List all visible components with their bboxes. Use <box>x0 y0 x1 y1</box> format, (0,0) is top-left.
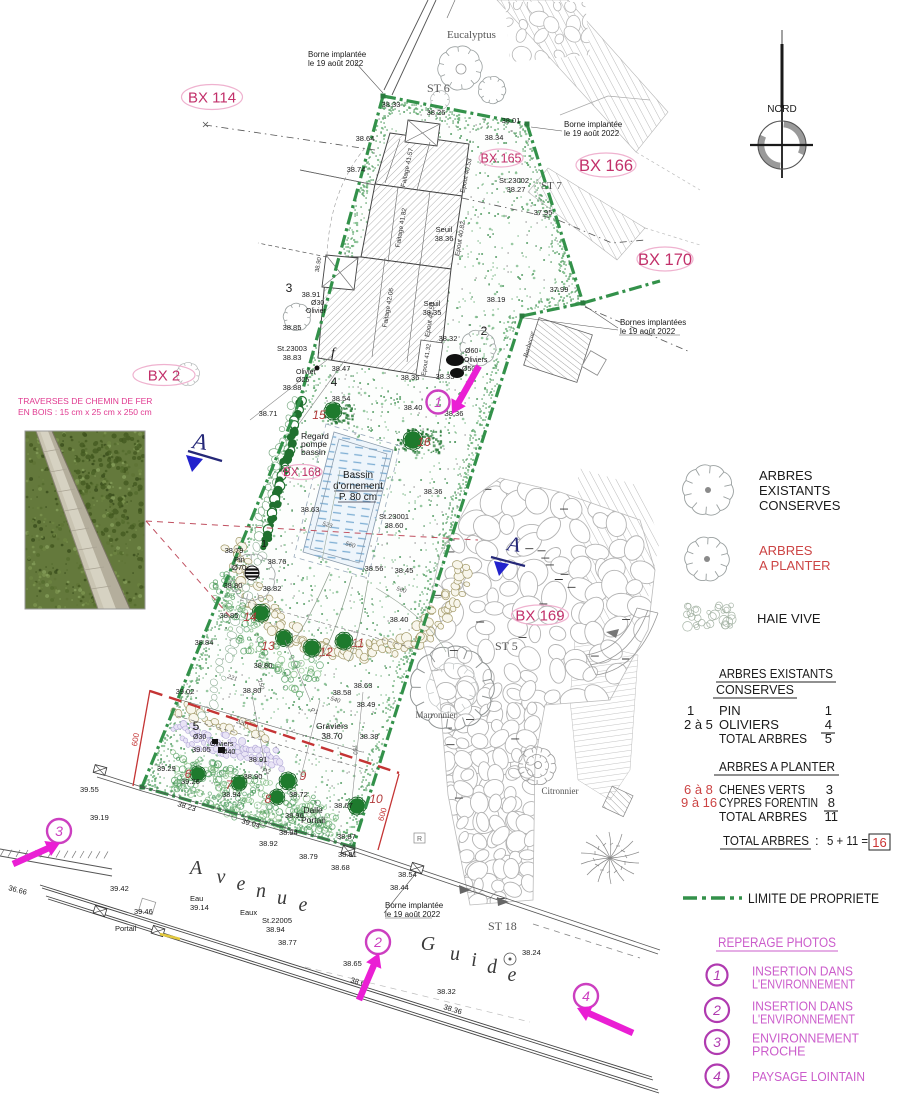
svg-text:Ø30: Ø30 <box>311 300 324 307</box>
svg-text:5 + 11 =: 5 + 11 = <box>827 833 868 848</box>
svg-text:A PLANTER: A PLANTER <box>759 558 831 573</box>
svg-text:3: 3 <box>286 281 293 295</box>
svg-text::: : <box>815 833 819 848</box>
svg-text:Olivier: Olivier <box>306 308 327 315</box>
svg-text:12: 12 <box>319 645 333 659</box>
svg-text:4: 4 <box>713 1068 721 1084</box>
svg-text:e: e <box>299 894 308 916</box>
svg-text:5: 5 <box>825 731 832 746</box>
svg-text:38.70: 38.70 <box>321 731 343 741</box>
svg-text:38.90: 38.90 <box>244 772 263 781</box>
svg-text:Ø40: Ø40 <box>222 749 235 756</box>
svg-text:1: 1 <box>687 703 694 718</box>
svg-text:EN BOIS : 15 cm x 25 cm x 250: EN BOIS : 15 cm x 25 cm x 250 cm <box>18 407 152 417</box>
svg-text:St.23002: St.23002 <box>499 176 529 185</box>
svg-text:L'ENVIRONNEMENT: L'ENVIRONNEMENT <box>752 1013 855 1027</box>
svg-text:39.02: 39.02 <box>176 687 195 696</box>
svg-text:Borne implantée: Borne implantée <box>564 120 623 129</box>
svg-text:le 19 août 2022: le 19 août 2022 <box>308 59 364 68</box>
svg-text:CONSERVES: CONSERVES <box>759 498 841 513</box>
svg-text:Eucalyptus: Eucalyptus <box>447 29 496 41</box>
svg-text:St.23001: St.23001 <box>379 512 409 521</box>
svg-text:38.35: 38.35 <box>423 308 442 317</box>
svg-text:e: e <box>508 964 517 986</box>
svg-text:38.34: 38.34 <box>485 133 504 142</box>
svg-text:39.05: 39.05 <box>192 745 211 754</box>
svg-text:CYPRES FORENTIN: CYPRES FORENTIN <box>719 795 818 810</box>
svg-text:38.32: 38.32 <box>437 987 456 996</box>
svg-text:38.94: 38.94 <box>279 828 298 837</box>
svg-text:le 19 août 2022: le 19 août 2022 <box>620 327 676 336</box>
svg-text:38.81: 38.81 <box>338 850 357 859</box>
svg-text:39.46: 39.46 <box>134 907 153 916</box>
svg-text:TOTAL ARBRES: TOTAL ARBRES <box>719 731 807 746</box>
svg-text:d: d <box>487 956 498 978</box>
svg-text:le 19 août 2022: le 19 août 2022 <box>564 129 620 138</box>
svg-text:38.77: 38.77 <box>278 938 297 947</box>
svg-text:16: 16 <box>872 835 886 850</box>
svg-text:37.99: 37.99 <box>550 285 569 294</box>
svg-text:38.63: 38.63 <box>354 681 373 690</box>
svg-text:u: u <box>277 887 287 909</box>
svg-text:Borne implantée: Borne implantée <box>385 901 444 910</box>
svg-text:39.29: 39.29 <box>157 764 176 773</box>
svg-text:Portail: Portail <box>301 815 325 825</box>
svg-text:PROCHE: PROCHE <box>752 1045 805 1059</box>
svg-text:TOTAL ARBRES: TOTAL ARBRES <box>723 833 809 848</box>
svg-text:38.79: 38.79 <box>225 546 244 555</box>
svg-text:BX 165: BX 165 <box>480 151 521 165</box>
svg-text:CONSERVES: CONSERVES <box>716 682 794 697</box>
svg-text:BX 170: BX 170 <box>638 251 692 269</box>
svg-text:37.95: 37.95 <box>534 208 553 217</box>
svg-text:1: 1 <box>261 539 267 550</box>
svg-text:2: 2 <box>712 1002 721 1018</box>
svg-text:38.01: 38.01 <box>502 116 521 125</box>
svg-text:38.79: 38.79 <box>299 852 318 861</box>
svg-text:3: 3 <box>713 1034 721 1050</box>
svg-text:4: 4 <box>582 988 590 1004</box>
svg-text:38.27: 38.27 <box>507 185 526 194</box>
svg-text:REPERAGE PHOTOS: REPERAGE PHOTOS <box>718 935 836 950</box>
svg-text:Olivier: Olivier <box>296 369 317 376</box>
svg-text:BX 169: BX 169 <box>515 607 564 624</box>
svg-text:38.74: 38.74 <box>347 165 366 174</box>
svg-text:38.56: 38.56 <box>365 564 384 573</box>
svg-text:38.47: 38.47 <box>332 364 351 373</box>
svg-text:PAYSAGE LOINTAIN: PAYSAGE LOINTAIN <box>752 1070 865 1084</box>
svg-text:10: 10 <box>369 792 383 806</box>
svg-text:u: u <box>450 943 460 965</box>
svg-text:R: R <box>417 836 422 843</box>
svg-text:38.94: 38.94 <box>222 790 241 799</box>
svg-text:ARBRES: ARBRES <box>759 543 813 558</box>
svg-text:LIMITE DE PROPRIETE: LIMITE DE PROPRIETE <box>748 890 879 906</box>
svg-text:Eaux: Eaux <box>240 908 257 917</box>
svg-text:Bassin: Bassin <box>343 470 373 481</box>
svg-text:Dalle: Dalle <box>303 805 323 815</box>
svg-text:38.58: 38.58 <box>333 688 352 697</box>
svg-text:14: 14 <box>243 610 257 624</box>
svg-text:38.44: 38.44 <box>390 883 409 892</box>
svg-text:BX 2: BX 2 <box>148 367 181 384</box>
svg-text:11: 11 <box>825 809 839 824</box>
svg-text:Portail: Portail <box>115 924 137 933</box>
svg-text:i: i <box>471 949 477 971</box>
svg-text:9: 9 <box>300 769 307 783</box>
svg-text:PIN: PIN <box>719 703 741 718</box>
svg-text:8: 8 <box>828 795 835 810</box>
svg-text:5: 5 <box>193 719 200 733</box>
svg-text:4: 4 <box>825 717 832 732</box>
svg-text:NORD: NORD <box>767 104 796 115</box>
svg-text:Bornes implantées: Bornes implantées <box>620 318 686 327</box>
svg-text:e: e <box>237 873 246 895</box>
svg-text:ARBRES EXISTANTS: ARBRES EXISTANTS <box>719 666 833 681</box>
svg-text:38.80: 38.80 <box>254 661 273 670</box>
svg-text:9 à 16: 9 à 16 <box>681 795 717 810</box>
svg-text:38.36: 38.36 <box>435 234 454 243</box>
svg-text:ST 18: ST 18 <box>488 919 517 933</box>
svg-text:Ø25: Ø25 <box>296 377 309 384</box>
svg-text:BX 168: BX 168 <box>283 467 321 479</box>
svg-text:38.92: 38.92 <box>259 839 278 848</box>
svg-text:Ø30: Ø30 <box>193 734 206 741</box>
svg-text:INSERTION DANS: INSERTION DANS <box>752 965 853 979</box>
svg-text:Ø70: Ø70 <box>232 563 246 572</box>
svg-text:TRAVERSES DE CHEMIN DE FER: TRAVERSES DE CHEMIN DE FER <box>18 396 152 406</box>
svg-text:8: 8 <box>265 792 272 806</box>
svg-text:39.55: 39.55 <box>80 785 99 794</box>
svg-text:38.85: 38.85 <box>283 323 302 332</box>
svg-text:39.42: 39.42 <box>110 884 129 893</box>
svg-text:38.68: 38.68 <box>331 863 350 872</box>
svg-text:Citronnier: Citronnier <box>542 786 579 796</box>
svg-text:38.65: 38.65 <box>343 959 362 968</box>
svg-text:1: 1 <box>713 967 721 983</box>
svg-text:BX 114: BX 114 <box>188 89 236 106</box>
svg-text:ST 6: ST 6 <box>427 81 450 95</box>
svg-text:38.71: 38.71 <box>259 409 278 418</box>
svg-text:A: A <box>188 857 203 879</box>
svg-text:38.67: 38.67 <box>334 801 353 810</box>
svg-text:BX 166: BX 166 <box>579 157 633 175</box>
svg-text:13: 13 <box>261 639 275 653</box>
svg-text:38.76: 38.76 <box>268 557 287 566</box>
svg-text:4: 4 <box>331 375 338 389</box>
svg-text:38.80: 38.80 <box>224 581 243 590</box>
svg-text:38.19: 38.19 <box>487 295 506 304</box>
svg-text:St.23003: St.23003 <box>277 344 307 353</box>
svg-text:38.32: 38.32 <box>439 334 458 343</box>
svg-text:38.60: 38.60 <box>385 521 404 530</box>
svg-text:OLIVIERS: OLIVIERS <box>719 717 779 732</box>
svg-text:G: G <box>421 933 436 955</box>
svg-text:Seuil: Seuil <box>436 225 453 234</box>
svg-text:v: v <box>217 866 226 888</box>
svg-text:38.91: 38.91 <box>302 290 321 299</box>
svg-text:ENVIRONNEMENT: ENVIRONNEMENT <box>752 1032 859 1046</box>
svg-text:38.49: 38.49 <box>357 700 376 709</box>
svg-text:le 19 août 2022: le 19 août 2022 <box>385 910 441 919</box>
svg-text:38.88: 38.88 <box>283 383 302 392</box>
svg-text:38.54: 38.54 <box>332 394 351 403</box>
svg-text:38.36: 38.36 <box>424 487 443 496</box>
svg-text:TOTAL ARBRES: TOTAL ARBRES <box>719 809 807 824</box>
svg-text:38.26: 38.26 <box>427 108 446 117</box>
svg-text:16: 16 <box>417 435 431 449</box>
svg-text:Seuil: Seuil <box>424 299 441 308</box>
svg-text:INSERTION DANS: INSERTION DANS <box>752 1000 853 1014</box>
svg-text:38.45: 38.45 <box>395 566 414 575</box>
svg-text:HAIE VIVE: HAIE VIVE <box>757 611 821 626</box>
svg-text:38.82: 38.82 <box>263 584 282 593</box>
svg-text:38.40: 38.40 <box>390 615 409 624</box>
svg-text:38.54: 38.54 <box>398 870 417 879</box>
svg-text:Eau: Eau <box>190 894 203 903</box>
svg-text:n: n <box>256 880 266 902</box>
svg-text:Oliviers: Oliviers <box>464 357 488 364</box>
svg-text:39.14: 39.14 <box>190 903 209 912</box>
svg-text:38.91: 38.91 <box>249 755 268 764</box>
svg-text:EXISTANTS: EXISTANTS <box>759 483 831 498</box>
svg-text:38.80: 38.80 <box>243 686 262 695</box>
svg-text:bassin: bassin <box>301 447 326 457</box>
svg-text:3: 3 <box>55 823 63 839</box>
svg-text:Graviers: Graviers <box>316 721 348 731</box>
svg-text:38.38: 38.38 <box>360 732 379 741</box>
svg-text:38.33: 38.33 <box>382 100 401 109</box>
svg-text:L'ENVIRONNEMENT: L'ENVIRONNEMENT <box>752 978 855 992</box>
svg-text:39.19: 39.19 <box>90 813 109 822</box>
svg-text:Oliviers: Oliviers <box>210 741 234 748</box>
svg-text:Marronnier: Marronnier <box>416 710 457 720</box>
svg-text:38.40: 38.40 <box>404 403 423 412</box>
svg-text:Ø60: Ø60 <box>465 348 478 355</box>
svg-text:ARBRES A PLANTER: ARBRES A PLANTER <box>719 759 835 774</box>
svg-text:39.26: 39.26 <box>181 777 200 786</box>
svg-text:38.87: 38.87 <box>337 832 356 841</box>
svg-text:2: 2 <box>373 934 382 950</box>
svg-text:St.22005: St.22005 <box>262 916 292 925</box>
svg-text:15: 15 <box>312 408 326 422</box>
svg-text:38.33: 38.33 <box>436 372 455 381</box>
svg-text:38.83: 38.83 <box>283 353 302 362</box>
svg-text:38.64: 38.64 <box>356 134 375 143</box>
svg-text:38.63: 38.63 <box>301 505 320 514</box>
svg-text:ARBRES: ARBRES <box>759 468 813 483</box>
svg-text:ST 5: ST 5 <box>495 639 518 653</box>
svg-text:P. 80 cm: P. 80 cm <box>339 492 377 503</box>
svg-text:1: 1 <box>825 703 832 718</box>
svg-text:2 à 5: 2 à 5 <box>684 717 713 732</box>
svg-text:Borne implantée: Borne implantée <box>308 50 367 59</box>
svg-text:38.36: 38.36 <box>401 373 420 382</box>
svg-text:38.94: 38.94 <box>266 925 285 934</box>
svg-text:d'ornement: d'ornement <box>333 481 383 492</box>
svg-text:38.24: 38.24 <box>522 948 541 957</box>
svg-text:38.72: 38.72 <box>289 790 308 799</box>
svg-text:38.84: 38.84 <box>195 638 214 647</box>
svg-text:1: 1 <box>434 394 442 410</box>
